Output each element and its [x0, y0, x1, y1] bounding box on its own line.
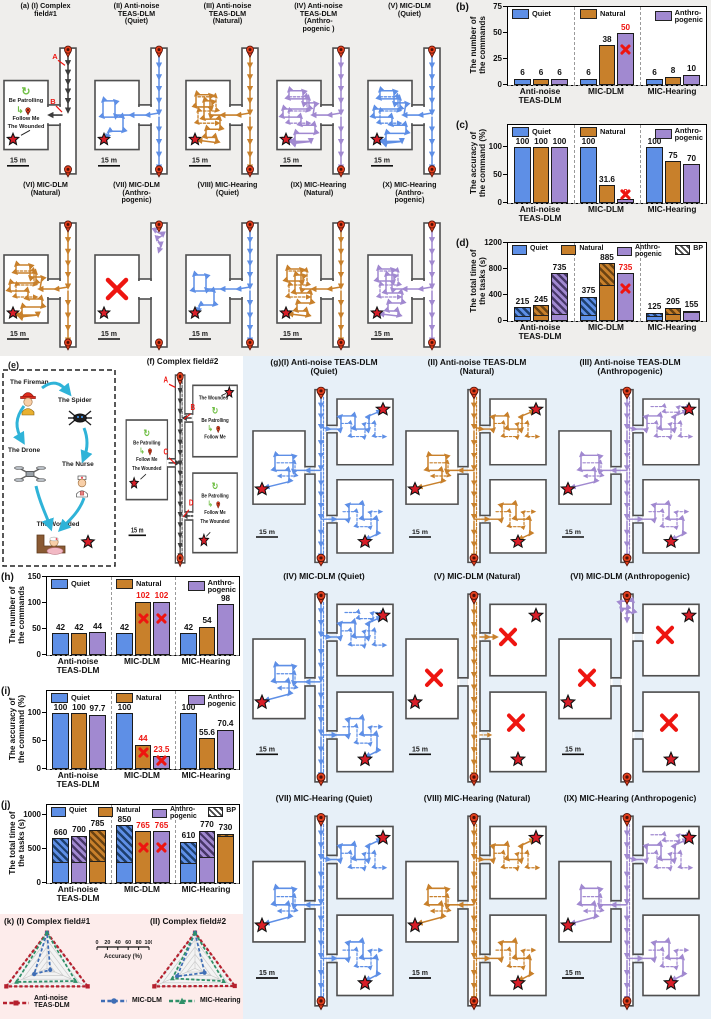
x-category-label: MIC-Hearing	[174, 771, 238, 780]
bar-value-label: 155	[675, 300, 709, 309]
x-category-label: Anti-noise TEAS-DLM	[46, 657, 110, 674]
map-cell: 15 m	[91, 42, 182, 180]
scale-bar-label: 15 m	[412, 746, 428, 753]
circle	[27, 109, 29, 111]
scale-bar-label: 15 m	[259, 746, 275, 753]
map-cell: 15 m	[364, 42, 455, 180]
scale-bar-label: 15 m	[192, 331, 208, 338]
spider-label: The Spider	[58, 397, 92, 404]
circle	[472, 775, 475, 778]
scale-bar-label: 15 m	[101, 158, 117, 165]
bar	[514, 147, 531, 203]
rect	[86, 984, 90, 988]
drone-label: The Drone	[8, 447, 41, 454]
y-tick-label: 50	[17, 624, 41, 633]
map-title: (IV) MIC-DLM (Quiet)	[249, 572, 399, 581]
bp-hatch-overlay	[218, 835, 233, 837]
map-title: (II) Anti-noise TEAS-DLM (Quiet)	[91, 2, 182, 25]
field-wall	[621, 594, 633, 782]
scale-bar-label: 15 m	[259, 529, 275, 536]
y-tick-label: 1200	[478, 238, 502, 247]
circle	[48, 968, 52, 972]
legend-item: Natural	[116, 693, 161, 703]
panel-letter: (b)	[456, 2, 469, 13]
circle	[158, 341, 161, 344]
bp-hatch-overlay	[515, 308, 530, 317]
x-category-label: Anti-noise TEAS-DLM	[507, 323, 573, 340]
legend-label: Natural	[600, 128, 625, 135]
chart-c: (c)The accuracy of the command (%)050100…	[455, 120, 711, 236]
x-category-label: MIC-DLM	[573, 205, 639, 214]
patrol-label: Be Patrolling	[201, 493, 228, 500]
plot-area: QuietNaturalAnthro- pogenicBP66070078585…	[46, 804, 240, 884]
wounded-label: The Wounded	[200, 519, 229, 526]
legend-label: BP	[226, 808, 236, 815]
bp-hatch-overlay	[90, 831, 105, 862]
radar-chart-field1	[0, 928, 94, 992]
scale-bar-label: 15 m	[283, 331, 299, 338]
wall-opening	[47, 107, 49, 123]
y-tick-label: 100	[478, 142, 502, 151]
panel-k-radar-charts: (k) (I) Complex field#1(II) Complex fiel…	[0, 914, 243, 1019]
map-title: (X) MIC-Hearing (Anthro- pogenic)	[364, 181, 455, 204]
circle	[472, 594, 475, 597]
panel-f-title: (f) Complex field#2	[122, 357, 243, 366]
legend-item: Natural	[580, 127, 625, 137]
line	[85, 411, 91, 416]
scale-tick: 40	[115, 940, 121, 946]
field1-map: 15 m	[273, 217, 364, 353]
flow-arrow	[42, 383, 68, 392]
marker-A: A	[52, 52, 58, 61]
y-tick-label: 0	[478, 198, 502, 207]
map-title: (V) MIC-DLM (Natural)	[402, 572, 552, 581]
bp-hatch-overlay	[581, 298, 596, 316]
bp-hatch-overlay	[534, 306, 549, 316]
bar	[153, 602, 170, 655]
y-axis-label: The accuracy of the command (%)	[471, 124, 487, 202]
location-pin-icon	[317, 997, 325, 1010]
ellipse	[47, 548, 63, 555]
legend-item: Natural	[116, 579, 161, 589]
y-tick-label: 0	[17, 764, 41, 773]
radar-legend-label: MIC-DLM	[132, 998, 162, 1005]
map-cell: 15 m	[182, 42, 273, 180]
patrol-loop-icon: ↻	[143, 427, 150, 438]
bar	[199, 627, 216, 655]
field2-map: 15 m	[249, 810, 399, 1012]
legend-swatch	[51, 579, 68, 589]
flow-arrow	[36, 486, 50, 526]
map-title: (IV) Anti-noise TEAS-DLM (Anthro- pogeni…	[273, 2, 364, 33]
circle	[249, 223, 252, 226]
circle	[202, 971, 206, 975]
ellipse	[14, 467, 23, 470]
y-tick-label: 100	[17, 708, 41, 717]
bar-value-label: 100	[572, 137, 606, 146]
failure-x-mark	[137, 612, 150, 625]
wall-opening	[167, 460, 169, 466]
legend-symbol	[100, 996, 128, 1006]
field2-reference-map: ABCD↻Be Patrolling↳Follow MeThe WoundedT…	[123, 369, 242, 569]
field2-map: 15 m	[402, 384, 552, 568]
failure-x-mark	[137, 841, 150, 854]
plot-area: QuietNaturalAnthro- pogenic4242444210210…	[46, 576, 240, 656]
chart-j: (j)The total time of the tasks (s)050010…	[0, 800, 243, 912]
bar	[52, 713, 69, 769]
field2-map: 15 m	[555, 810, 705, 1012]
location-pin-icon	[337, 166, 344, 177]
span: The total time of the tasks (s)	[470, 249, 488, 312]
bar	[665, 161, 682, 203]
bar	[646, 79, 663, 85]
bar	[533, 79, 550, 85]
bar-value-label: 70.4	[209, 719, 243, 728]
map-title: (VIII) MIC-Hearing (Natural)	[402, 794, 552, 803]
wounded-label: The Wounded	[199, 395, 228, 402]
location-pin-icon	[246, 339, 253, 350]
circle	[218, 427, 219, 429]
bar	[217, 604, 234, 655]
legend-label: Anthro- pogenic	[675, 9, 703, 23]
circle	[32, 972, 36, 976]
wall-opening	[632, 634, 634, 640]
map-title: (IX) MIC-Hearing (Anthropogenic)	[555, 794, 705, 803]
bar	[180, 842, 197, 883]
bp-hatch-overlay	[181, 843, 196, 865]
flow-arrow	[84, 428, 87, 458]
circle	[78, 479, 86, 487]
field2-map: 15 m	[402, 810, 552, 1012]
map-title: (g)(I) Anti-noise TEAS-DLM (Quiet)	[249, 358, 399, 376]
circle	[625, 816, 628, 819]
legend-label: Natural	[136, 580, 161, 587]
plot-area: QuietNaturalAnthro- pogenicBP21524573537…	[507, 242, 707, 322]
x-category-label: Anti-noise TEAS-DLM	[507, 87, 573, 104]
bar-value-label: 735	[609, 263, 643, 272]
field1-map: 15 m	[364, 217, 455, 353]
wall-opening	[642, 732, 644, 738]
bar	[71, 836, 88, 883]
circle	[67, 48, 70, 51]
span: The number of the commands	[470, 16, 488, 74]
follow-arrow-icon: ↳	[208, 499, 213, 509]
map-cell: 15 m	[273, 217, 364, 353]
wall-opening	[620, 679, 622, 685]
spider-icon	[68, 411, 92, 425]
bar-value-label: 31.6	[590, 175, 624, 184]
scale-bar-label: 15 m	[131, 527, 144, 535]
radar-legend-item: MIC-Hearing	[168, 996, 241, 1006]
bar-value-label: 100	[108, 703, 142, 712]
y-tick-label: 25	[478, 54, 502, 63]
bp-hatch-overlay	[666, 309, 681, 315]
bar	[533, 147, 550, 203]
circle	[56, 538, 58, 540]
bar	[217, 730, 234, 769]
field2-map: 15 m	[555, 588, 705, 788]
circle	[249, 168, 252, 171]
bar	[135, 602, 152, 655]
circle	[149, 450, 150, 452]
wall-opening	[457, 679, 459, 685]
span: (f)	[147, 357, 155, 366]
follow-arrow-icon: ↳	[208, 423, 213, 433]
span: Complex field#2	[155, 357, 219, 366]
x-category-label: MIC-Hearing	[639, 323, 705, 332]
circle	[158, 48, 161, 51]
map-cell: AB↻Be Patrolling↳Follow MeThe Wounded15 …	[0, 42, 91, 180]
circle	[67, 223, 70, 226]
circle	[340, 168, 343, 171]
legend-label: Natural	[600, 10, 625, 17]
bar	[71, 633, 88, 655]
map-title: (VIII) MIC-Hearing (Quiet)	[182, 181, 273, 196]
location-pin-icon	[623, 997, 631, 1010]
field1-map: 15 m	[91, 217, 182, 353]
bar-value-label: 730	[209, 823, 243, 832]
circle	[625, 775, 628, 778]
bar-value-label: 100	[172, 703, 206, 712]
x-category-label: Anti-noise TEAS-DLM	[46, 771, 110, 788]
legend-label: Quiet	[71, 694, 90, 701]
bar	[135, 831, 152, 883]
rect	[4, 984, 8, 988]
marker-A: A	[164, 374, 169, 384]
follow-label: Follow Me	[13, 116, 40, 122]
bar	[153, 831, 170, 883]
map-cell: 15 m	[91, 217, 182, 353]
map-cell: 15 m	[555, 384, 705, 568]
failure-x-mark	[155, 754, 168, 767]
panels-h-i-j-charts: (h)The number of the commands050100150Qu…	[0, 572, 243, 914]
wounded-label: The Wounded	[8, 124, 45, 130]
wall-opening	[632, 732, 634, 738]
legend-swatch	[512, 127, 529, 137]
circle	[67, 168, 70, 171]
fireman-icon	[21, 393, 36, 416]
circle	[319, 389, 322, 392]
map-title: (VII) MIC-DLM (Anthro- pogenic)	[91, 181, 182, 204]
circle	[431, 168, 434, 171]
line	[169, 384, 175, 387]
map-title: (II) Anti-noise TEAS-DLM (Natural)	[402, 358, 552, 376]
bar	[514, 307, 531, 321]
map-title: (III) Anti-noise TEAS-DLM (Anthropogenic…	[555, 358, 705, 376]
panel-a-field1-maps: (a) (I) Complex field#1AB↻Be Patrolling↳…	[0, 0, 455, 356]
bar	[180, 713, 197, 769]
map-title: (a) (I) Complex field#1	[0, 2, 91, 17]
scale-tick: 80	[136, 940, 142, 946]
panel-g-field2-trajectories: (g)(I) Anti-noise TEAS-DLM (Quiet)15 m(I…	[243, 356, 711, 1019]
chart-h: (h)The number of the commands050100150Qu…	[0, 572, 243, 684]
figure: (a) (I) Complex field#1AB↻Be Patrolling↳…	[0, 0, 711, 1019]
bar	[199, 738, 216, 769]
radar-chart-field2	[148, 928, 242, 992]
y-tick-label: 800	[478, 264, 502, 273]
legend-item: BP	[675, 245, 703, 255]
bar	[580, 297, 597, 321]
map-cell: 15 m	[249, 810, 399, 1012]
location-pin-icon	[470, 997, 478, 1010]
legend-label: Quiet	[530, 246, 548, 253]
bp-hatch-overlay	[72, 837, 87, 863]
legend-swatch	[51, 807, 66, 817]
scale-tick: 0	[96, 940, 99, 946]
x-category-label: MIC-DLM	[573, 323, 639, 332]
circle	[340, 48, 343, 51]
legend-item: Quiet	[51, 693, 90, 703]
patrol-label: Be Patrolling	[9, 98, 44, 104]
bar	[617, 273, 634, 321]
accuracy-scale-ruler: 020406080100Accuracy (%)	[94, 936, 152, 962]
bp-hatch-overlay	[552, 274, 567, 315]
bar	[71, 713, 88, 769]
chart-legend: QuietNaturalAnthro- pogenicBP	[51, 807, 236, 820]
legend-item: Quiet	[512, 127, 551, 137]
x-category-label: Anti-noise TEAS-DLM	[46, 885, 110, 902]
ellipse	[14, 479, 23, 482]
map-title: (VI) MIC-DLM (Anthropogenic)	[555, 572, 705, 581]
circle	[319, 556, 322, 559]
panels-b-c-d-charts: (b)The number of the commands0255075Quie…	[455, 0, 711, 356]
failure-x-mark	[619, 43, 632, 56]
bp-hatch-swatch	[675, 245, 690, 255]
legend-swatch	[561, 245, 576, 255]
bar-value-label: 735	[543, 263, 577, 272]
marker-D: D	[189, 498, 194, 508]
map-cell: 15 m	[364, 217, 455, 353]
circle	[431, 223, 434, 226]
ellipse	[36, 467, 45, 470]
circle	[218, 503, 219, 505]
location-pin-icon	[155, 339, 162, 350]
location-pin-icon	[428, 339, 435, 350]
legend-item: Anthro- pogenic	[152, 807, 197, 820]
bar	[533, 305, 550, 321]
scale-tick: 60	[125, 940, 131, 946]
bar	[551, 273, 568, 321]
scale-bar-label: 15 m	[259, 969, 275, 977]
scale-bar-label: 15 m	[283, 158, 299, 165]
y-tick-label: 0	[17, 878, 41, 887]
y-tick-label: 0	[17, 650, 41, 659]
map-cell: 15 m	[249, 588, 399, 788]
chart-i: (i)The accuracy of the command (%)050100…	[0, 686, 243, 798]
panel-f-field2-map: (f) Complex field#2ABCD↻Be Patrolling↳Fo…	[122, 356, 243, 572]
legend-swatch	[116, 693, 133, 703]
map-cell: 15 m	[249, 384, 399, 568]
scale-bar-label: 15 m	[10, 158, 26, 165]
failure-x-mark	[155, 841, 168, 854]
drone-icon	[14, 467, 45, 482]
legend-label: BP	[693, 246, 703, 253]
bar	[52, 838, 69, 883]
map-title: (IX) MIC-Hearing (Natural)	[273, 181, 364, 196]
bar-value-label: 102	[145, 591, 179, 600]
line	[69, 411, 75, 416]
rect	[80, 492, 84, 496]
location-pin-icon	[317, 773, 325, 786]
bp-hatch-overlay	[647, 314, 662, 317]
bar	[683, 164, 700, 203]
wounded-icon	[37, 535, 65, 554]
circle	[77, 416, 79, 418]
field2-map: 15 m	[555, 384, 705, 568]
bar-value-label: 44	[126, 734, 160, 743]
legend-item: Quiet	[512, 9, 551, 19]
bp-hatch-overlay	[200, 832, 215, 858]
y-axis-label: The number of the commands	[10, 576, 26, 654]
legend-swatch	[655, 11, 672, 21]
bar	[599, 263, 616, 321]
bar	[580, 79, 597, 85]
legend-symbol	[2, 998, 30, 1008]
legend-swatch	[580, 127, 597, 137]
legend-item: Anthro- pogenic	[655, 9, 703, 23]
location-pin-icon	[470, 554, 478, 566]
plot-area: QuietNaturalAnthro- pogenic1001001001003…	[507, 124, 707, 204]
location-pin-icon	[428, 166, 435, 177]
y-axis-label: The number of the commands	[471, 6, 487, 84]
panel-letter: (c)	[456, 120, 468, 131]
bar	[116, 633, 133, 655]
failure-x-mark	[155, 612, 168, 625]
map-title: (V) MIC-DLM (Quiet)	[364, 2, 455, 17]
legend-swatch	[116, 579, 133, 589]
circle	[158, 223, 161, 226]
follow-label: Follow Me	[204, 434, 226, 441]
location-pin-icon	[470, 773, 478, 786]
plot-area: QuietNaturalAnthro- pogenic666638506810	[507, 6, 707, 86]
legend-item: Natural	[580, 9, 625, 19]
path	[22, 409, 34, 416]
y-tick-label: 50	[17, 736, 41, 745]
radar-legend-label: MIC-Hearing	[200, 998, 241, 1005]
x-category-label: MIC-Hearing	[639, 205, 705, 214]
field1-map: 15 m	[364, 42, 455, 180]
patrol-label: Be Patrolling	[201, 418, 228, 425]
x-category-label: MIC-DLM	[110, 885, 174, 894]
y-tick-label: 100	[17, 598, 41, 607]
rect	[26, 471, 34, 476]
fireman-label: The Fireman	[10, 379, 49, 386]
bar	[665, 308, 682, 321]
chart-b: (b)The number of the commands0255075Quie…	[455, 2, 711, 118]
scale-bar-label: 15 m	[565, 529, 581, 536]
wall-opening	[467, 679, 469, 685]
legend-label: Natural	[136, 694, 161, 701]
x-category-label: MIC-Hearing	[639, 87, 705, 96]
legend-swatch	[580, 9, 597, 19]
scale-bar-label: 15 m	[10, 331, 26, 338]
chart-d: (d)The total time of the tasks (s)040080…	[455, 238, 711, 354]
patrol-loop-icon: ↻	[21, 86, 30, 98]
bar	[217, 834, 234, 884]
span: The number of the commands	[9, 586, 27, 644]
rect	[233, 984, 237, 988]
span: The accuracy of the command (%)	[9, 695, 27, 763]
circle	[340, 223, 343, 226]
y-tick-label: 75	[478, 2, 502, 11]
bar	[665, 77, 682, 85]
field1-map: 15 m	[182, 217, 273, 353]
bar-value-label: 885	[590, 253, 624, 262]
patrol-loop-icon: ↻	[212, 405, 219, 416]
y-tick-label: 50	[478, 28, 502, 37]
map-cell: 15 m	[402, 384, 552, 568]
follow-label: Follow Me	[204, 509, 226, 516]
